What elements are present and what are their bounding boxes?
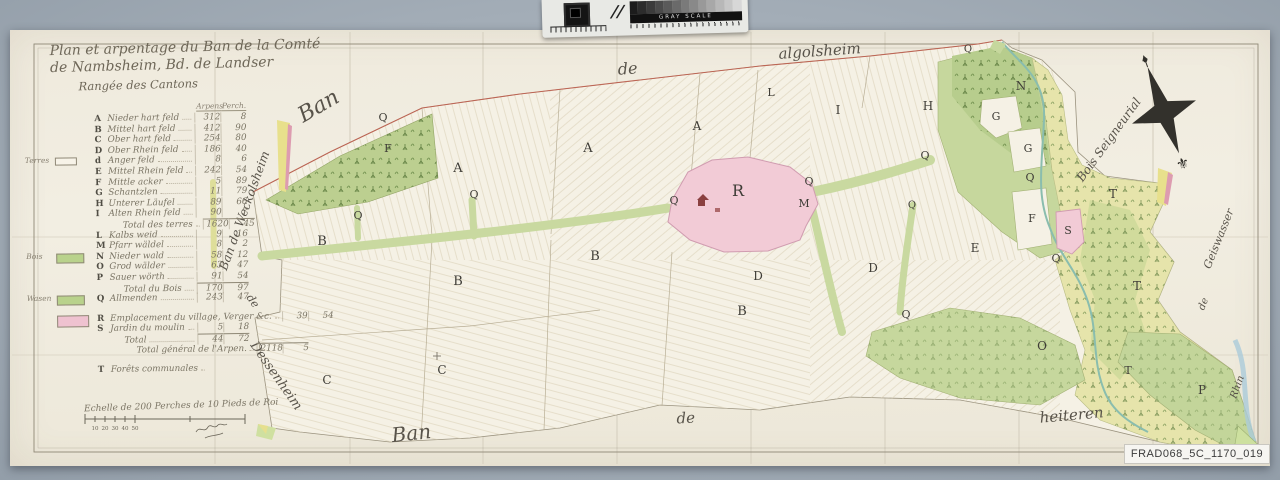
legend-table: Arpens Perch. ANieder hart feld3128BMitt… (94, 101, 250, 376)
legend-swatch-pink (57, 315, 89, 327)
legend-dotted-leader (201, 370, 205, 371)
legend-arpens-value: 58 (196, 250, 222, 260)
boundary-label: de (1196, 296, 1211, 312)
parcel-letter: Q (964, 44, 972, 55)
parcel-letter: C (437, 363, 446, 377)
boundary-label: Ban (293, 85, 344, 129)
grayscale-ramp-zone: GRAY SCALE (629, 0, 742, 28)
legend-key: S (97, 324, 110, 334)
scale-tick-labels: 1020304050 (92, 426, 139, 432)
legend-perches-value: 6 (221, 154, 247, 164)
archive-reference-label: FRAD068_5C_1170_019 (1124, 444, 1270, 464)
grayscale-step (698, 0, 707, 12)
legend-perches-value: 54 (222, 271, 248, 281)
legend-arpens-value: 186 (195, 144, 221, 154)
legend-key: N (96, 252, 109, 262)
parcel-letter: F (384, 142, 392, 155)
grayscale-step (724, 0, 733, 12)
legend-perches-value: 54 (221, 165, 247, 175)
legend-dotted-leader (167, 256, 193, 257)
legend-arpens-value: 2118 (257, 343, 283, 354)
legend-arpens-value: 11 (195, 186, 221, 196)
parcel-letter: Q (1025, 171, 1034, 184)
legend-name: Nieder hart feld (107, 113, 179, 124)
legend-dotted-leader (178, 203, 193, 204)
legend-key: E (95, 167, 108, 177)
legend-dotted-leader (179, 129, 192, 130)
scale-tick-label: 20 (102, 426, 109, 432)
legend-dotted-leader (186, 172, 192, 173)
legend-dotted-leader (166, 182, 192, 183)
legend-arpens-value: 9 (196, 229, 222, 239)
parcel-letter: C (322, 373, 331, 387)
legend-dotted-leader (150, 341, 195, 343)
legend-dotted-leader (184, 214, 193, 215)
parcel-letter: E (971, 241, 980, 255)
grayscale-step (690, 0, 699, 13)
parcel-letter: Q (804, 175, 813, 188)
grayscale-step (672, 0, 681, 13)
legend-col-perches: Perch. (221, 101, 246, 111)
legend-arpens-value: 242 (195, 165, 221, 175)
legend-dotted-leader (161, 193, 193, 194)
legend-arpens-value: 5 (195, 176, 221, 186)
legend-name: Pfarr wäldel (109, 240, 164, 251)
legend-name: Kalbs weid (109, 230, 158, 241)
legend-key: O (96, 262, 109, 272)
legend-dotted-leader (196, 226, 200, 227)
grayscale-step (629, 1, 638, 14)
parcel-letter: T (1124, 364, 1132, 377)
parcel-letter: B (317, 234, 327, 249)
parcel-letter: Q (920, 149, 929, 162)
legend-key: G (95, 188, 108, 198)
legend-perches-value: 18 (223, 322, 249, 332)
parcel-letter: A (692, 119, 702, 133)
scale-tick-label: 40 (122, 426, 129, 432)
grayscale-step (664, 0, 673, 13)
legend-dotted-leader (161, 235, 193, 236)
grayscale-step (655, 0, 664, 13)
legend-key: D (95, 146, 108, 156)
legend-perches-value: 40 (221, 144, 247, 154)
legend-name: Nieder wald (109, 251, 164, 262)
boundary-label: Geiswasser (1201, 206, 1237, 270)
map-title-block: Plan et arpentage du Ban de la Comté de … (49, 37, 290, 94)
legend-arpens-value: 243 (197, 292, 223, 302)
legend-swatch-outline (55, 158, 77, 166)
parcel-letter: T (1133, 279, 1141, 293)
scale-tick-label: 30 (112, 426, 119, 432)
legend-name: Total général de l'Arpen. (136, 344, 247, 356)
legend-margin-word: Bois (26, 252, 42, 261)
legend-arpens-value: 312 (194, 112, 220, 122)
legend-perches-value: 89 (221, 176, 247, 186)
legend-dotted-leader (168, 278, 194, 279)
black-patch-icon (564, 3, 591, 28)
parcel-letter: Q (901, 308, 910, 321)
parcel-letter: Q (469, 188, 478, 201)
village-area (668, 157, 818, 252)
grayscale-step (647, 1, 656, 14)
grayscale-step (707, 0, 716, 12)
legend-arpens-value: 89 (195, 197, 221, 207)
parcel-letter: B (590, 249, 600, 264)
parcel-letter: B (737, 304, 747, 319)
legend-dotted-leader (174, 140, 192, 141)
legend-arpens-value: 63 (196, 261, 222, 271)
grayscale-step (733, 0, 742, 12)
legend-perches-value: 66 (221, 197, 247, 207)
legend-key: H (95, 199, 108, 209)
legend-arpens-value: 8 (196, 239, 222, 249)
grayscale-step (716, 0, 725, 12)
legend-dotted-leader (182, 119, 191, 120)
parcel-letter: M (798, 197, 809, 210)
grayscale-step (638, 1, 647, 14)
boundary-label: Ban (389, 419, 432, 447)
legend-key: A (94, 114, 107, 124)
legend-perches-value: 2 (222, 239, 248, 249)
legend-key: C (95, 135, 108, 145)
legend-arpens-value: 90 (196, 208, 222, 218)
compass-fleur-icon: ⚜ (1173, 153, 1192, 175)
legend-key: R (97, 314, 110, 324)
legend-dotted-leader (167, 246, 193, 247)
parcel-letter: I (836, 103, 841, 117)
legend-margin-word: Terres (25, 156, 49, 165)
legend-perches-value: 54 (308, 310, 334, 320)
legend-key: Q (97, 294, 110, 304)
parcel-letter: Q (1051, 252, 1060, 265)
legend-perches-value: 7 (222, 207, 248, 217)
legend-perches-value: 47 (223, 292, 249, 302)
scale-tick-label: 10 (92, 426, 99, 432)
legend-perches-value: 47 (222, 260, 248, 270)
legend-name: Mittel hart feld (107, 124, 175, 135)
legend-dotted-leader (250, 350, 254, 351)
legend-perches-value: 45 (229, 218, 255, 229)
legend-dotted-leader (161, 299, 194, 300)
parcel-letter: Q (378, 111, 387, 124)
legend-name: Forêts communales (111, 364, 198, 375)
legend-margin-word: Wasen (27, 294, 52, 303)
legend-key: B (94, 124, 107, 134)
legend-perches-value: 79 (221, 186, 247, 196)
parcel-letter: R (732, 181, 745, 200)
legend-arpens-value: 412 (194, 123, 220, 133)
legend-rows: ANieder hart feld3128BMittel hart feld41… (94, 112, 250, 376)
scale-bar: 1020304050 (85, 414, 245, 432)
legend-column-headers: Arpens Perch. (94, 101, 246, 113)
parcel-letter: N (1016, 79, 1027, 93)
legend-dotted-leader (182, 150, 192, 151)
legend-name: Mittle acker (108, 177, 163, 188)
legend-perches-value: 5 (283, 343, 309, 354)
parcel-letter: A (582, 141, 593, 156)
legend-key: M (96, 241, 109, 251)
parcel-letter: B (453, 274, 463, 289)
parcel-letter: L (767, 86, 775, 99)
parcel-letter: P (1198, 383, 1206, 397)
parcel-letter: Q (353, 209, 362, 222)
parcel-letter: G (992, 110, 1001, 123)
parcel-letter: D (753, 269, 763, 283)
legend-row: Total général de l'Arpen.21185 (97, 343, 249, 356)
legend-name: Alten Rhein feld (109, 208, 181, 219)
legend-dotted-leader (158, 161, 192, 162)
parcel-letter: D (868, 261, 878, 275)
legend-perches-value: 16 (222, 228, 248, 238)
boundary-label: de (676, 409, 696, 428)
parcel-letter: H (923, 99, 933, 113)
legend-arpens-value: 254 (195, 133, 221, 143)
boundary-label: Bois Seigneurial (1073, 95, 1144, 185)
legend-row: WasenQAllmenden24347 (97, 292, 249, 305)
legend-key: d (95, 156, 108, 166)
legend-name: Schantzlen (108, 187, 158, 198)
calibration-ruler-icon (550, 25, 606, 33)
legend-key: I (96, 209, 109, 219)
legend-key: L (96, 230, 109, 240)
calibration-density-patch (550, 0, 607, 32)
legend-perches-value: 90 (220, 123, 246, 133)
legend-name: Jardin du moulin (110, 323, 185, 334)
legend-swatch-green (57, 295, 85, 305)
parcel-letter: T (1109, 187, 1117, 201)
color-calibration-target: ∕∕ GRAY SCALE (541, 0, 748, 38)
legend-perches-value: 8 (220, 112, 246, 122)
legend-swatch-green (56, 253, 84, 263)
legend-dotted-leader (185, 289, 194, 290)
legend-key: P (96, 273, 109, 283)
parcel-letter: Q (669, 194, 678, 207)
boundary-label: de (617, 58, 638, 78)
legend-dotted-leader (275, 317, 279, 318)
parcel-letter: Q (908, 200, 916, 211)
legend-name: Mittel Rhein feld (108, 166, 184, 177)
legend-name: Unterer Läufel (108, 198, 174, 209)
surveyor-signature (196, 424, 227, 438)
grayscale-step (681, 0, 690, 13)
parcel-letter: S (1064, 224, 1072, 237)
parcel-letter: A (452, 161, 463, 176)
legend-dotted-leader (168, 267, 193, 268)
parcel-letter: F (1028, 212, 1036, 225)
scale-tick-label: 50 (132, 426, 139, 432)
legend-key: F (95, 177, 108, 187)
legend-name: Allmenden (110, 293, 158, 304)
parcel-letter: G (1024, 142, 1033, 155)
legend-perches-value: 12 (222, 250, 248, 260)
scanned-map-stage: ⚜ 1020304050 AAABBBBCCDDEFFGGHILMNOPQQQQ… (0, 0, 1280, 480)
legend-name: Ober hart feld (108, 134, 172, 145)
legend-name: Grod wälder (109, 261, 165, 272)
legend-name: Sauer wörth (109, 272, 165, 283)
legend-name: Anger feld (108, 156, 155, 167)
legend-arpens-value: 5 (197, 323, 223, 333)
legend-dotted-leader (188, 329, 194, 330)
legend-arpens-value: 91 (196, 271, 222, 281)
legend-key: T (98, 365, 111, 375)
legend-perches-value: 80 (221, 133, 247, 143)
legend-col-arpens: Arpens (196, 101, 221, 111)
legend-arpens-value: 8 (195, 155, 221, 165)
legend-name: Ober Rhein feld (108, 145, 179, 156)
legend-arpens-value: 39 (282, 311, 308, 321)
legend-row: TForêts communales (98, 363, 250, 376)
calibration-slashes-icon: ∕∕ (609, 2, 626, 21)
parcel-letter: O (1037, 339, 1047, 353)
